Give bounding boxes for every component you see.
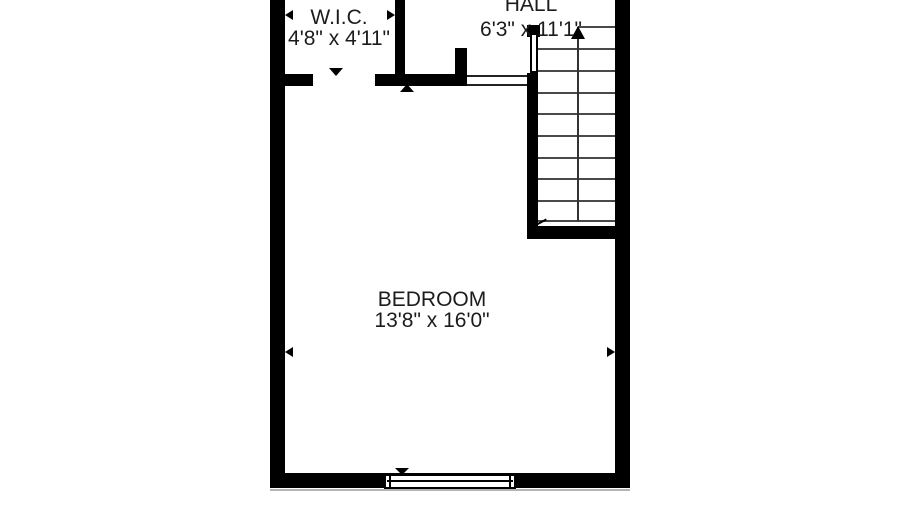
- room-name: W.I.C.: [288, 7, 390, 28]
- room-dimensions: 6'3" x 11'1": [480, 19, 582, 40]
- wall-wic-south-right: [375, 74, 467, 86]
- wall-hall-west-stub: [455, 48, 467, 86]
- room-name: HALL: [480, 0, 582, 15]
- wall-stair-west: [527, 73, 538, 239]
- room-label-wic: W.I.C. 4'8" x 4'11": [288, 7, 390, 49]
- dimension-arrow-icon: [285, 347, 293, 357]
- cased-opening-bottom-line: [467, 84, 527, 86]
- room-label-hall: HALL 6'3" x 11'1": [480, 0, 582, 40]
- door-marker-arrow-icon: [400, 84, 414, 92]
- window-jamb-right: [509, 475, 511, 488]
- dimension-arrow-icon: [607, 347, 615, 357]
- room-name: BEDROOM: [374, 289, 489, 310]
- window-jamb-left: [389, 475, 391, 488]
- door-marker-arrow-icon: [329, 68, 343, 76]
- window-center-line: [387, 480, 513, 482]
- room-dimensions: 4'8" x 4'11": [288, 28, 390, 49]
- room-label-bedroom: BEDROOM 13'8" x 16'0": [374, 289, 489, 331]
- wall-shadow-line: [270, 489, 630, 491]
- wall-stair-south: [527, 226, 630, 239]
- wall-left-exterior: [270, 0, 285, 488]
- window-marker-arrow-icon: [395, 468, 409, 475]
- cased-opening-top-line: [467, 75, 527, 77]
- wall-wic-hall-divider: [395, 0, 405, 75]
- room-dimensions: 13'8" x 16'0": [374, 310, 489, 331]
- floor-plan-canvas: W.I.C. 4'8" x 4'11" HALL 6'3" x 11'1" BE…: [0, 0, 900, 529]
- wall-wic-south-left: [285, 74, 313, 86]
- stair-direction-line: [577, 27, 579, 221]
- wall-right-exterior: [615, 0, 630, 488]
